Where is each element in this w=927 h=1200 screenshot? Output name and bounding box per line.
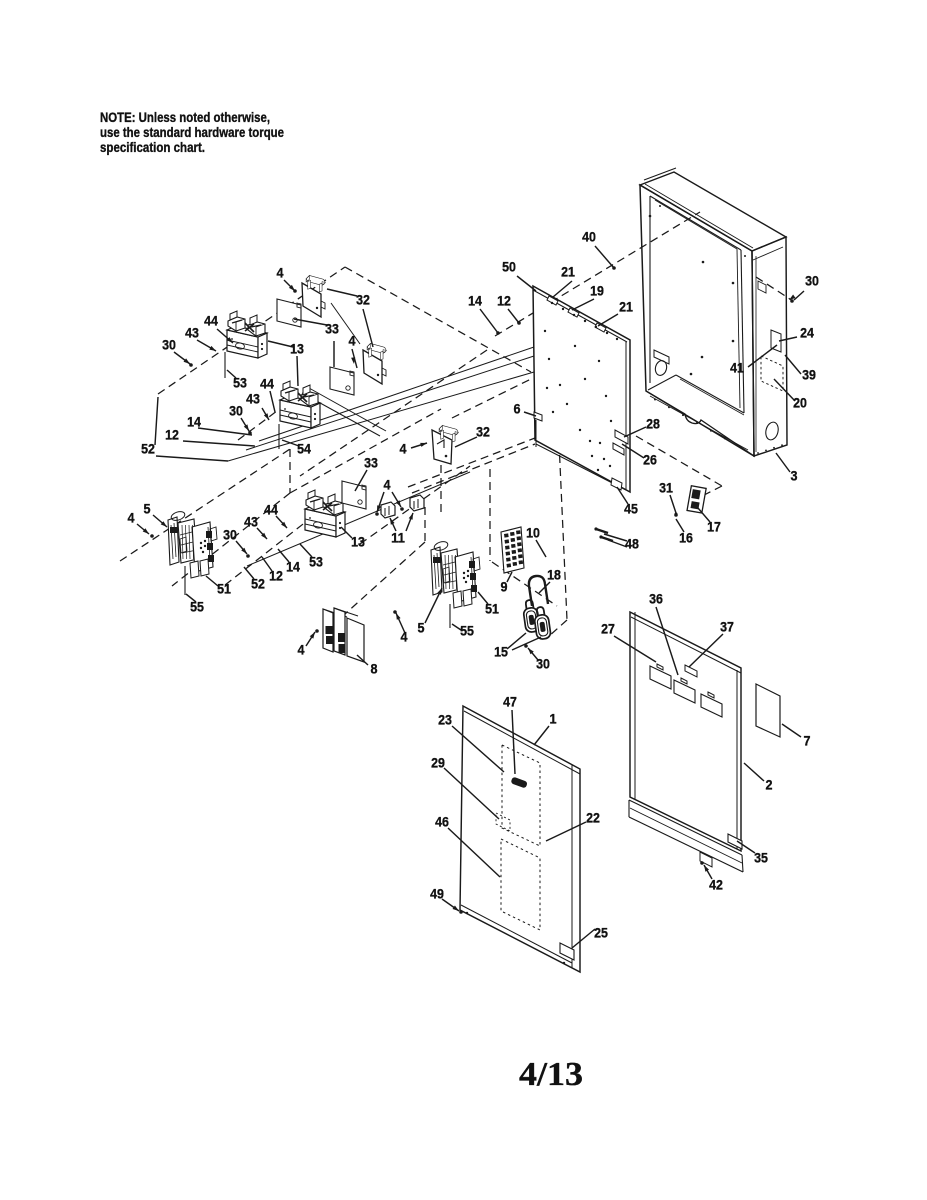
svg-text:48: 48 — [625, 536, 639, 552]
svg-text:4: 4 — [349, 333, 356, 349]
svg-text:35: 35 — [754, 850, 768, 866]
svg-text:44: 44 — [204, 313, 218, 329]
svg-text:4/13: 4/13 — [519, 1056, 583, 1093]
svg-text:44: 44 — [260, 376, 274, 392]
svg-text:33: 33 — [364, 455, 378, 471]
svg-text:use the standard hardware torq: use the standard hardware torque — [100, 124, 284, 140]
svg-text:28: 28 — [646, 416, 660, 432]
svg-text:50: 50 — [502, 259, 516, 275]
svg-text:43: 43 — [246, 391, 260, 407]
svg-text:1: 1 — [550, 711, 557, 727]
svg-text:37: 37 — [720, 619, 734, 635]
svg-text:40: 40 — [582, 229, 596, 245]
svg-text:45: 45 — [624, 501, 638, 517]
svg-text:5: 5 — [144, 501, 151, 517]
svg-text:4: 4 — [277, 265, 284, 281]
svg-text:41: 41 — [730, 360, 744, 376]
svg-text:9: 9 — [501, 579, 508, 595]
svg-text:52: 52 — [141, 441, 155, 457]
svg-text:53: 53 — [309, 554, 323, 570]
svg-text:6: 6 — [514, 401, 521, 417]
svg-text:30: 30 — [223, 527, 237, 543]
svg-text:44: 44 — [264, 502, 278, 518]
svg-text:12: 12 — [497, 293, 511, 309]
svg-text:29: 29 — [431, 755, 445, 771]
svg-text:12: 12 — [165, 427, 179, 443]
svg-text:2: 2 — [766, 777, 773, 793]
svg-text:32: 32 — [356, 292, 370, 308]
svg-text:55: 55 — [460, 623, 474, 639]
svg-text:4: 4 — [384, 477, 391, 493]
svg-text:13: 13 — [290, 341, 304, 357]
svg-text:24: 24 — [800, 325, 814, 341]
svg-text:4: 4 — [298, 642, 305, 658]
svg-text:21: 21 — [619, 299, 633, 315]
svg-text:49: 49 — [430, 886, 444, 902]
svg-text:43: 43 — [185, 325, 199, 341]
svg-text:18: 18 — [547, 567, 561, 583]
svg-text:42: 42 — [709, 877, 723, 893]
svg-text:15: 15 — [494, 644, 508, 660]
svg-text:3: 3 — [791, 468, 798, 484]
svg-text:4: 4 — [400, 441, 407, 457]
svg-text:30: 30 — [805, 273, 819, 289]
svg-text:13: 13 — [351, 534, 365, 550]
svg-text:4: 4 — [401, 629, 408, 645]
svg-text:27: 27 — [601, 621, 615, 637]
svg-text:23: 23 — [438, 712, 452, 728]
svg-text:26: 26 — [643, 452, 657, 468]
svg-text:10: 10 — [526, 525, 540, 541]
svg-text:NOTE: Unless noted otherwise,: NOTE: Unless noted otherwise, — [100, 109, 270, 125]
svg-text:19: 19 — [590, 283, 604, 299]
svg-text:14: 14 — [468, 293, 482, 309]
svg-text:16: 16 — [679, 530, 693, 546]
svg-text:22: 22 — [586, 810, 600, 826]
svg-text:52: 52 — [251, 576, 265, 592]
svg-text:17: 17 — [707, 519, 721, 535]
svg-text:47: 47 — [503, 694, 517, 710]
svg-text:51: 51 — [217, 581, 231, 597]
svg-text:51: 51 — [485, 601, 499, 617]
svg-text:14: 14 — [286, 559, 300, 575]
svg-text:20: 20 — [793, 395, 807, 411]
svg-text:7: 7 — [804, 733, 811, 749]
svg-text:46: 46 — [435, 814, 449, 830]
svg-text:21: 21 — [561, 264, 575, 280]
svg-text:8: 8 — [371, 661, 378, 677]
svg-text:53: 53 — [233, 375, 247, 391]
svg-text:11: 11 — [391, 530, 405, 546]
svg-text:25: 25 — [594, 925, 608, 941]
svg-text:32: 32 — [476, 424, 490, 440]
svg-text:14: 14 — [187, 414, 201, 430]
svg-text:33: 33 — [325, 321, 339, 337]
svg-text:5: 5 — [418, 620, 425, 636]
svg-text:43: 43 — [244, 514, 258, 530]
svg-text:12: 12 — [269, 568, 283, 584]
svg-text:36: 36 — [649, 591, 663, 607]
svg-text:30: 30 — [536, 656, 550, 672]
svg-text:55: 55 — [190, 599, 204, 615]
svg-text:54: 54 — [297, 441, 311, 457]
svg-text:4: 4 — [128, 510, 135, 526]
svg-text:31: 31 — [659, 480, 673, 496]
svg-text:30: 30 — [229, 403, 243, 419]
svg-text:39: 39 — [802, 367, 816, 383]
svg-text:30: 30 — [162, 337, 176, 353]
svg-text:specification chart.: specification chart. — [100, 139, 205, 155]
